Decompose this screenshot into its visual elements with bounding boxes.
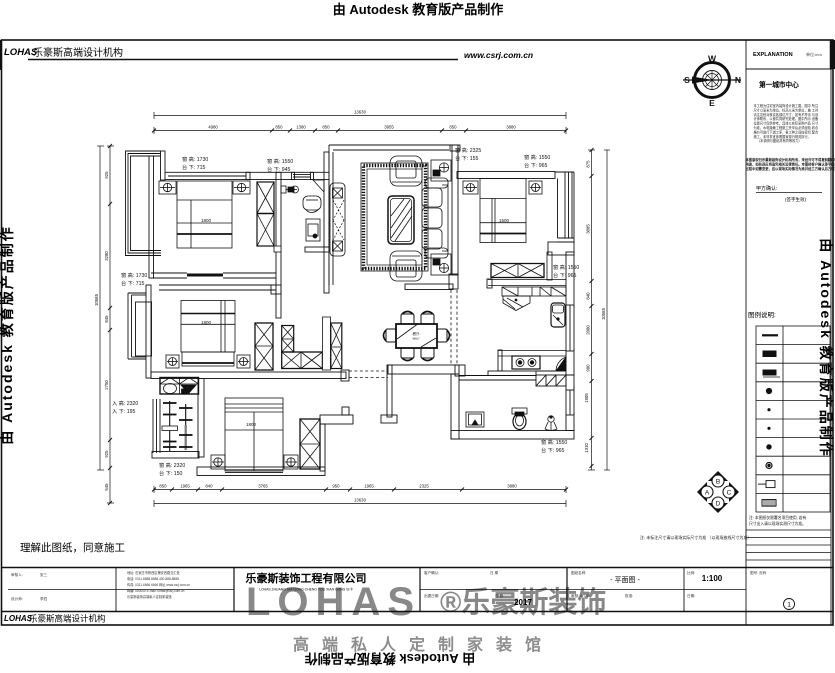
svg-text:为准，水电隐蔽工程施工完毕后必须经验 收合: 为准，水电隐蔽工程施工完毕后必须经验 收合 [754,125,819,130]
svg-text:传真: 0311-6666 6666 网址 www.csrj: 传真: 0311-6666 6666 网址 www.csrj.com.cn [127,582,190,587]
svg-text:台 下: 965: 台 下: 965 [541,446,564,454]
svg-text:925: 925 [104,450,109,458]
svg-text:1:100: 1:100 [702,574,723,583]
svg-text:窗 高: 2320: 窗 高: 2320 [159,461,185,469]
svg-text:2750: 2750 [104,380,109,390]
svg-text:850: 850 [159,484,167,489]
svg-text:由 Autodesk 教育版产品制作: 由 Autodesk 教育版产品制作 [818,238,834,458]
svg-text:理解此图纸，同意施工: 理解此图纸，同意施工 [20,541,125,554]
svg-text:单位:mm: 单位:mm [806,51,822,57]
svg-text:2080: 2080 [586,325,591,335]
svg-text:邮编: 050000 E-mail: lohas@csrj: 邮编: 050000 E-mail: lohas@csrj.com.cn [127,588,185,593]
svg-text:过程中如需变更，应以现场实际情况为准并经三方确认后方可施工。: 过程中如需变更，应以现场实际情况为准并经三方确认后方可施工。 [746,166,835,171]
svg-text:设计师:: 设计师: [11,596,23,601]
svg-text:C: C [727,490,732,497]
svg-text:本图版权归乐豪斯装饰设计机构所有，未经许可不得复制翻印或用于: 本图版权归乐豪斯装饰设计机构所有，未经许可不得复制翻印或用于其它 [745,157,835,162]
svg-text:台 下: 155: 台 下: 155 [455,154,478,162]
svg-text:3880: 3880 [506,125,516,130]
svg-text:乐豪斯装饰高端私人定制家装馆: 乐豪斯装饰高端私人定制家装馆 [127,594,172,599]
svg-text:比例:: 比例: [687,570,695,575]
svg-text:A: A [705,490,710,497]
svg-text:窗 高: 1730: 窗 高: 1730 [182,155,208,163]
svg-text:窗 高: 1550: 窗 高: 1550 [267,157,293,165]
svg-text:审核: W7.5: 审核: W7.5 [571,593,589,598]
svg-text:1500: 1500 [499,218,510,223]
svg-text:(签字生效): (签字生效) [785,196,806,203]
svg-text:第一城市中心: 第一城市中心 [759,80,799,89]
svg-text:E: E [709,98,715,108]
svg-text:W: W [708,54,717,64]
svg-text:900: 900 [586,364,591,372]
svg-text:入 下: 195: 入 下: 195 [112,408,135,415]
svg-text:张三: 张三 [40,572,48,577]
svg-text:本工程为住宅室内装饰设计施工图，图中 所注: 本工程为住宅室内装饰设计施工图，图中 所注 [754,103,819,108]
svg-text:用途，如有违反将追究相关法律责任。本图经客户确认签字后生效，: 用途，如有违反将追究相关法律责任。本图经客户确认签字后生效，施工 [745,162,835,167]
svg-text:台 下: 945: 台 下: 945 [267,165,290,173]
svg-text:电话: 0311-8888 8888 400-888-88: 电话: 0311-8888 8888 400-888-8888 [127,576,179,581]
svg-text:施工，未尽事宜参照国家现行规范执行。: 施工，未尽事宜参照国家现行规范执行。 [754,134,811,139]
svg-text:日 期: 日 期 [490,570,499,575]
svg-text:www.csrj.com.cn: www.csrj.com.cn [464,50,533,60]
svg-text:窗 高: 1550: 窗 高: 1550 [524,153,550,161]
svg-text:计师联系，以便共同研究处理。图中所示 设备: 计师联系，以便共同研究处理。图中所示 设备 [754,116,819,121]
svg-text:840: 840 [205,484,213,489]
svg-text:李四: 李四 [40,596,48,601]
svg-text:2325: 2325 [419,484,429,489]
svg-text:3280: 3280 [104,251,109,261]
svg-text:1965: 1965 [364,484,374,489]
svg-text:EXPLANATION: EXPLANATION [753,52,793,58]
svg-text:客户确认:: 客户确认: [424,570,439,575]
svg-text:-餐厅-: -餐厅- [411,331,420,336]
svg-text:N: N [735,75,741,85]
svg-text:10585: 10585 [601,307,606,320]
svg-text:甲方确认:: 甲方确认: [756,185,777,192]
svg-text:图号: 页码: 图号: 页码 [750,570,767,575]
svg-text:850: 850 [449,125,457,130]
svg-text:由 Autodesk 教育版产品制作: 由 Autodesk 教育版产品制作 [333,2,503,17]
svg-text:窗 高: 2325: 窗 高: 2325 [455,146,481,154]
svg-text:840: 840 [586,292,591,300]
svg-text:3880: 3880 [507,484,517,489]
svg-text:13630: 13630 [354,498,367,503]
svg-text:850: 850 [275,125,283,130]
svg-text:图例说明:: 图例说明: [748,310,776,319]
svg-text:925: 925 [104,171,109,179]
svg-text:审核人:: 审核人: [11,572,23,577]
svg-text:3955: 3955 [384,125,394,130]
svg-text:2017: 2017 [514,598,532,607]
svg-text:乐豪斯高端设计机构: 乐豪斯高端设计机构 [29,614,106,624]
svg-text:1380: 1380 [296,125,306,130]
svg-text:批准:: 批准: [625,593,633,598]
svg-text:窗 高: 1550: 窗 高: 1550 [553,263,579,271]
svg-text:由 Autodesk 教育版产品制作: 由 Autodesk 教育版产品制作 [0,225,15,445]
svg-text:注: 本图纸仅限署名项目使用, 若有: 注: 本图纸仅限署名项目使用, 若有 [749,515,807,520]
svg-text:台 下: 715: 台 下: 715 [121,279,144,287]
svg-text:日期:: 日期: [687,593,695,598]
svg-text:1965: 1965 [180,484,190,489]
svg-text:出图日期:: 出图日期: [424,593,439,598]
svg-text:- 平面图 -: - 平面图 - [610,576,640,584]
svg-text:格方可进行下道工序，各工种之间应密切 配合: 格方可进行下道工序，各工种之间应密切 配合 [754,129,819,134]
svg-text:LOHAS ZHUANG SHI GONG CHENG YO: LOHAS ZHUANG SHI GONG CHENG YOU XIAN GON… [259,588,353,592]
svg-text:875: 875 [586,160,591,168]
svg-text:950: 950 [332,484,340,489]
svg-text:845: 845 [104,315,109,323]
svg-text:尺寸出入请以现场实测尺寸为准。: 尺寸出入请以现场实测尺寸为准。 [749,521,806,526]
svg-text:3765: 3765 [258,484,268,489]
svg-text:尺寸以毫米为单位，标高以米为单位，施 工时: 尺寸以毫米为单位，标高以米为单位，施 工时 [754,107,819,112]
svg-text:台 下: 965: 台 下: 965 [524,161,547,169]
svg-text:545: 545 [104,483,109,491]
svg-text:966x7: 966x7 [412,337,420,341]
svg-text:（本说明与图纸具有同等效力）: （本说明与图纸具有同等效力） [757,138,802,143]
svg-text:地址: 石家庄市桥西区槐安西路交汇处: 地址: 石家庄市桥西区槐安西路交汇处 [127,570,181,575]
svg-text:位置尺寸仅供参考，具体以实际采购产品 尺寸: 位置尺寸仅供参考，具体以实际采购产品 尺寸 [754,121,819,126]
svg-text:台 下: 715: 台 下: 715 [182,163,205,171]
svg-text:3085: 3085 [586,224,591,234]
svg-text:窗 高: 1550: 窗 高: 1550 [541,438,567,446]
svg-text:850: 850 [322,125,330,130]
svg-text:台 下: 150: 台 下: 150 [159,469,182,477]
svg-text:请注意校对核实各部位尺寸，如有不符请 与设: 请注意校对核实各部位尺寸，如有不符请 与设 [754,112,819,117]
svg-text:1800: 1800 [201,218,212,223]
svg-text:1800: 1800 [246,422,257,427]
svg-text:乐豪斯高端设计机构: 乐豪斯高端设计机构 [33,46,123,59]
svg-text:乐豪斯装饰工程有限公司: 乐豪斯装饰工程有限公司 [246,571,367,585]
svg-text:B: B [716,479,720,486]
svg-text:窗 高: 1730: 窗 高: 1730 [121,271,147,279]
svg-text:1800: 1800 [201,320,212,325]
svg-text:4980: 4980 [208,125,218,130]
svg-text:台 下: 965: 台 下: 965 [553,271,576,279]
svg-text:高端私人定制家装馆: 高端私人定制家装馆 [293,635,554,654]
svg-text:日 期: 日 期 [495,593,504,598]
svg-text:D: D [716,501,721,508]
svg-text:10585: 10585 [94,293,99,306]
svg-text:注: 未标注尺寸请以现场实际尺寸为准 （以现场放线尺寸为准）: 注: 未标注尺寸请以现场实际尺寸为准 （以现场放线尺寸为准） [640,534,751,540]
svg-text:图纸名称:: 图纸名称: [571,570,586,575]
svg-text:1: 1 [787,602,791,609]
svg-text:1905: 1905 [584,393,589,403]
svg-text:S: S [684,75,690,85]
svg-text:13630: 13630 [354,110,367,115]
svg-text:入 高: 2320: 入 高: 2320 [112,399,138,407]
svg-text:1310: 1310 [584,443,589,453]
